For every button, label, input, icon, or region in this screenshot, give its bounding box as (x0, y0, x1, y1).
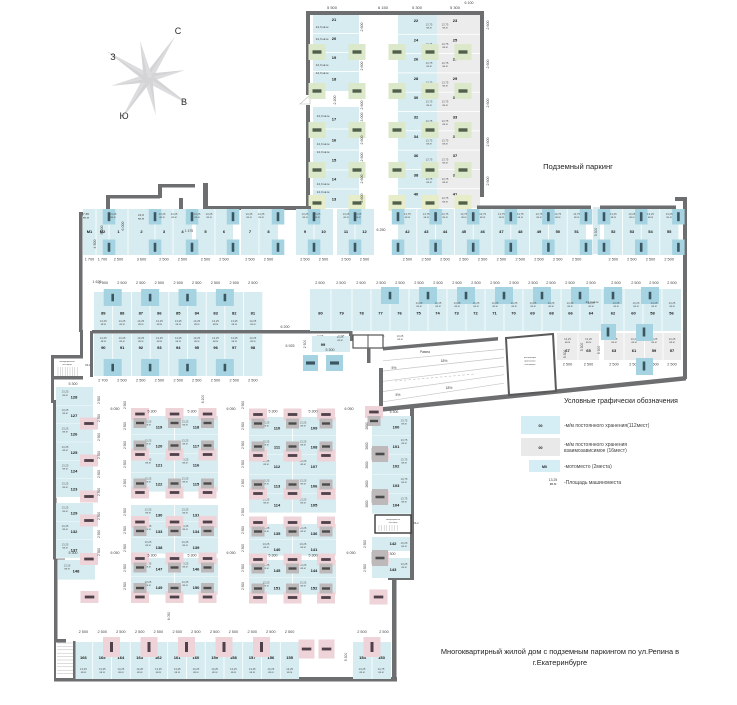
svg-text:103: 103 (393, 483, 400, 488)
svg-text:142: 142 (390, 541, 397, 546)
svg-text:кв.м: кв.м (182, 512, 187, 515)
svg-text:14,3 кв.м: 14,3 кв.м (316, 37, 329, 41)
svg-text:59: 59 (652, 348, 657, 353)
svg-text:111: 111 (274, 444, 281, 449)
svg-text:кв.м: кв.м (424, 216, 429, 219)
svg-text:2 500: 2 500 (534, 258, 544, 262)
svg-text:2 500: 2 500 (97, 414, 101, 422)
svg-text:2 500: 2 500 (154, 630, 164, 634)
svg-text:152: 152 (311, 585, 318, 590)
svg-text:151: 151 (274, 585, 281, 590)
svg-text:6 050: 6 050 (227, 407, 236, 411)
svg-text:2 500: 2 500 (609, 363, 619, 367)
svg-text:2 500: 2 500 (563, 363, 573, 367)
svg-text:2 500: 2 500 (192, 281, 202, 285)
svg-text:кв.м: кв.м (314, 216, 319, 219)
svg-text:96: 96 (213, 345, 218, 350)
svg-text:107: 107 (311, 464, 318, 469)
svg-text:кв.м: кв.м (62, 547, 67, 550)
svg-text:эвакуационная: эвакуационная (59, 361, 75, 363)
svg-text:кв.м: кв.м (536, 216, 541, 219)
svg-text:2 500: 2 500 (646, 258, 656, 262)
svg-text:14,3 кв.м: 14,3 кв.м (316, 25, 329, 29)
svg-text:кв.м: кв.м (426, 65, 431, 68)
svg-text:21: 21 (332, 17, 337, 22)
svg-text:кв.м: кв.м (213, 323, 218, 326)
svg-text:135: 135 (274, 531, 281, 536)
svg-text:2 500: 2 500 (471, 281, 481, 285)
svg-text:3 600: 3 600 (137, 258, 147, 262)
svg-text:2 500: 2 500 (219, 258, 229, 262)
svg-text:2 500: 2 500 (241, 582, 245, 590)
svg-text:166: 166 (80, 655, 87, 660)
svg-text:кв.м: кв.м (401, 442, 406, 445)
svg-text:14,3 кв.м: 14,3 кв.м (316, 71, 329, 75)
svg-text:кв.м: кв.м (633, 305, 638, 308)
svg-text:кв.м: кв.м (100, 671, 105, 674)
svg-text:2 500: 2 500 (452, 281, 462, 285)
svg-text:126: 126 (71, 432, 78, 437)
svg-text:2 500: 2 500 (155, 281, 165, 285)
svg-text:6 050: 6 050 (167, 612, 171, 621)
svg-text:2 500: 2 500 (266, 630, 276, 634)
svg-text:кв.м: кв.м (83, 215, 89, 219)
svg-text:2 500: 2 500 (97, 396, 101, 404)
svg-text:00: 00 (539, 424, 543, 428)
svg-text:00: 00 (539, 446, 543, 450)
svg-text:88: 88 (120, 311, 125, 316)
svg-text:5 300: 5 300 (344, 653, 348, 662)
svg-text:2 600: 2 600 (486, 60, 490, 69)
svg-text:2 500: 2 500 (135, 630, 145, 634)
svg-text:32: 32 (414, 115, 419, 120)
svg-text:77: 77 (378, 311, 383, 316)
svg-text:109: 109 (311, 425, 318, 430)
svg-text:кв.м: кв.м (669, 305, 674, 308)
svg-text:кв.м: кв.м (213, 340, 218, 343)
svg-text:2 500: 2 500 (247, 630, 257, 634)
svg-text:121: 121 (156, 462, 163, 467)
svg-text:2 500: 2 500 (303, 340, 307, 349)
svg-text:2 500: 2 500 (433, 281, 443, 285)
svg-text:2 500: 2 500 (123, 544, 127, 552)
svg-text:кв.м: кв.м (258, 216, 263, 219)
svg-text:лестница: лестница (389, 522, 399, 524)
svg-text:взаимозависимое (16мест): взаимозависимое (16мест) (564, 448, 627, 454)
svg-text:61: 61 (632, 348, 637, 353)
svg-text:2 500: 2 500 (211, 379, 221, 383)
svg-text:2 500: 2 500 (627, 258, 637, 262)
svg-text:2 500: 2 500 (572, 258, 582, 262)
svg-text:2600: 2600 (365, 480, 369, 487)
svg-text:2 500: 2 500 (395, 281, 405, 285)
svg-text:кв.м: кв.м (62, 449, 67, 452)
svg-text:2 500: 2 500 (667, 363, 677, 367)
svg-text:2 500: 2 500 (357, 630, 367, 634)
svg-text:148: 148 (73, 569, 80, 574)
svg-text:кв.м: кв.м (401, 566, 406, 569)
svg-text:2 500: 2 500 (379, 630, 389, 634)
svg-text:146: 146 (193, 566, 200, 571)
svg-text:кв.м: кв.м (378, 671, 383, 674)
svg-text:6 200: 6 200 (281, 325, 290, 329)
svg-text:2 500: 2 500 (241, 401, 245, 409)
svg-text:2600: 2600 (365, 442, 369, 449)
svg-text:кв.м: кв.м (62, 467, 67, 470)
svg-text:5 300: 5 300 (309, 410, 318, 414)
svg-text:5 300: 5 300 (188, 410, 197, 414)
svg-text:-м/м постоянного хранения(112м: -м/м постоянного хранения(112мест) (564, 423, 650, 429)
svg-text:кв.м: кв.м (442, 216, 447, 219)
svg-text:кв.м: кв.м (300, 585, 305, 588)
svg-text:5 300: 5 300 (269, 554, 278, 558)
svg-text:2 500: 2 500 (319, 258, 329, 262)
svg-text:кв.м: кв.м (62, 528, 67, 531)
svg-text:кв.м: кв.м (442, 27, 447, 30)
svg-text:кв.м: кв.м (145, 512, 150, 515)
svg-text:6 000: 6 000 (121, 222, 125, 231)
svg-text:кв.м: кв.м (62, 510, 67, 513)
svg-text:2600: 2600 (365, 422, 369, 429)
svg-text:2 700: 2 700 (98, 379, 108, 383)
svg-text:33: 33 (453, 115, 458, 120)
svg-text:ЛК-2: ЛК-2 (413, 521, 419, 525)
svg-text:110: 110 (274, 425, 281, 430)
svg-text:123: 123 (71, 487, 78, 492)
svg-text:5 300: 5 300 (100, 226, 104, 235)
svg-text:145: 145 (274, 568, 281, 573)
svg-text:143: 143 (390, 567, 397, 572)
svg-text:кв.м: кв.м (300, 567, 305, 570)
svg-text:кв.м: кв.м (159, 216, 164, 219)
svg-text:М0: М0 (542, 465, 547, 469)
svg-text:г.Екатеринбурге: г.Екатеринбурге (533, 658, 587, 667)
svg-text:кв.м: кв.м (442, 104, 447, 107)
svg-text:кв.м: кв.м (206, 216, 211, 219)
svg-text:кв.м: кв.м (648, 216, 653, 219)
svg-text:кв.м: кв.м (611, 216, 616, 219)
svg-text:кв.м: кв.м (511, 305, 516, 308)
svg-text:2 500: 2 500 (229, 281, 239, 285)
svg-text:кв.м: кв.м (157, 340, 162, 343)
svg-text:6 200: 6 200 (201, 395, 205, 404)
svg-text:17: 17 (332, 117, 337, 122)
svg-text:5 300: 5 300 (188, 554, 197, 558)
svg-text:кв.м: кв.м (171, 216, 176, 219)
svg-text:кв.м: кв.м (62, 394, 67, 397)
svg-text:2 500: 2 500 (97, 451, 101, 459)
svg-text:114: 114 (274, 502, 281, 507)
svg-text:2 500: 2 500 (191, 630, 201, 634)
svg-text:кв.м: кв.м (631, 341, 636, 344)
svg-text:5 300: 5 300 (148, 554, 157, 558)
svg-text:2 500: 2 500 (363, 540, 367, 548)
svg-text:приточного: приточного (524, 361, 536, 363)
svg-text:2 500: 2 500 (116, 630, 126, 634)
svg-text:15: 15 (332, 158, 337, 163)
svg-text:104: 104 (393, 503, 400, 508)
svg-text:155: 155 (286, 655, 293, 660)
svg-text:92: 92 (139, 345, 144, 350)
svg-text:2 500: 2 500 (611, 281, 621, 285)
svg-text:68: 68 (549, 311, 554, 316)
svg-text:2 500: 2 500 (515, 258, 525, 262)
svg-text:55: 55 (667, 229, 672, 234)
svg-text:139: 139 (193, 545, 200, 550)
svg-text:2 600: 2 600 (360, 153, 364, 162)
svg-text:85: 85 (176, 311, 181, 316)
svg-text:2 500: 2 500 (241, 441, 245, 449)
svg-text:2 500: 2 500 (376, 281, 386, 285)
svg-text:кв.м: кв.м (64, 568, 69, 571)
svg-text:28: 28 (414, 76, 419, 81)
svg-text:2 500: 2 500 (123, 422, 127, 430)
svg-text:95: 95 (195, 345, 200, 350)
svg-text:2 500: 2 500 (241, 564, 245, 572)
svg-text:2 500: 2 500 (459, 258, 469, 262)
svg-text:2 500: 2 500 (159, 258, 169, 262)
svg-text:6 925: 6 925 (286, 344, 295, 348)
svg-text:кв.м: кв.м (62, 431, 67, 434)
svg-text:5 500: 5 500 (327, 5, 338, 10)
svg-text:2 500: 2 500 (173, 281, 183, 285)
svg-text:6 050: 6 050 (111, 407, 120, 411)
svg-text:82: 82 (232, 311, 237, 316)
svg-text:2 500: 2 500 (553, 258, 563, 262)
svg-text:кв.м: кв.м (442, 181, 447, 184)
svg-text:2 500: 2 500 (565, 281, 575, 285)
svg-text:83: 83 (213, 311, 218, 316)
svg-text:2 600: 2 600 (486, 138, 490, 147)
svg-text:136: 136 (311, 531, 318, 536)
svg-text:2 500: 2 500 (241, 422, 245, 430)
svg-text:70: 70 (511, 311, 516, 316)
svg-text:кв.м: кв.м (156, 671, 161, 674)
svg-text:кв.м: кв.м (101, 323, 106, 326)
svg-text:63: 63 (612, 348, 617, 353)
svg-text:кв.м: кв.м (300, 502, 305, 505)
svg-text:25: 25 (453, 37, 458, 42)
svg-text:кв.м: кв.м (492, 305, 497, 308)
svg-text:1 700: 1 700 (98, 258, 108, 262)
svg-text:86: 86 (157, 311, 162, 316)
svg-text:2 500: 2 500 (97, 512, 101, 520)
svg-text:2 500: 2 500 (248, 379, 258, 383)
svg-text:2 500: 2 500 (123, 526, 127, 534)
svg-text:кв.м: кв.м (426, 104, 431, 107)
svg-text:43: 43 (424, 229, 429, 234)
svg-text:2 500: 2 500 (123, 508, 127, 516)
svg-text:2 500: 2 500 (241, 544, 245, 552)
svg-text:2 500: 2 500 (201, 258, 211, 262)
svg-text:кв.м: кв.м (651, 341, 656, 344)
svg-text:141: 141 (311, 547, 318, 552)
svg-text:2 500: 2 500 (360, 258, 370, 262)
svg-text:127: 127 (71, 413, 78, 418)
svg-text:кв.м: кв.м (232, 340, 237, 343)
svg-text:2 500: 2 500 (79, 630, 89, 634)
svg-text:лестница: лестница (62, 364, 72, 366)
svg-text:147: 147 (156, 566, 163, 571)
svg-text:кв.м: кв.м (246, 216, 251, 219)
svg-text:кв.м: кв.м (119, 340, 124, 343)
svg-text:кв.м: кв.м (555, 216, 560, 219)
svg-text:2 500: 2 500 (245, 258, 255, 262)
svg-text:65: 65 (586, 348, 591, 353)
svg-text:75: 75 (416, 311, 421, 316)
svg-text:81: 81 (251, 311, 256, 316)
svg-text:2 500: 2 500 (229, 379, 239, 383)
svg-text:кв.м: кв.м (263, 463, 268, 466)
svg-text:кв.м: кв.м (231, 671, 236, 674)
svg-text:51: 51 (574, 229, 579, 234)
svg-text:2 500: 2 500 (300, 258, 310, 262)
svg-text:138: 138 (156, 545, 163, 550)
svg-text:2 500: 2 500 (123, 564, 127, 572)
svg-text:44: 44 (443, 229, 448, 234)
svg-text:18: 18 (332, 77, 337, 82)
svg-text:кв.м: кв.м (454, 305, 459, 308)
svg-text:2 500: 2 500 (97, 488, 101, 496)
svg-text:18%: 18% (441, 359, 448, 363)
svg-text:5 300: 5 300 (390, 410, 399, 414)
svg-text:5 300: 5 300 (597, 346, 601, 355)
svg-text:кв.м: кв.м (194, 323, 199, 326)
svg-text:69: 69 (530, 311, 535, 316)
svg-text:2 500: 2 500 (414, 281, 424, 285)
svg-text:140: 140 (274, 547, 281, 552)
svg-text:6 050: 6 050 (111, 551, 120, 555)
svg-text:2 500: 2 500 (229, 630, 239, 634)
svg-text:14: 14 (332, 177, 337, 182)
svg-text:кв.м: кв.м (175, 671, 180, 674)
svg-text:132: 132 (71, 529, 78, 534)
svg-text:2 500: 2 500 (336, 281, 346, 285)
svg-text:З: З (110, 52, 115, 62)
svg-text:кв.м: кв.м (442, 142, 447, 145)
svg-text:125: 125 (71, 450, 78, 455)
svg-text:134: 134 (193, 529, 200, 534)
svg-text:кв.м: кв.м (337, 339, 342, 342)
svg-text:64: 64 (589, 311, 594, 316)
svg-text:10: 10 (321, 229, 326, 234)
svg-text:кв.м: кв.м (268, 671, 273, 674)
svg-text:133: 133 (156, 529, 163, 534)
svg-text:2 500: 2 500 (155, 379, 165, 383)
svg-text:93: 93 (157, 345, 162, 350)
svg-text:кв.м: кв.м (138, 323, 143, 326)
svg-text:5%: 5% (396, 393, 401, 397)
svg-text:2 500: 2 500 (341, 258, 351, 262)
svg-text:кв.м: кв.м (300, 483, 305, 486)
svg-text:6 050: 6 050 (227, 551, 236, 555)
svg-text:12: 12 (362, 229, 367, 234)
svg-text:кв.м: кв.м (499, 216, 504, 219)
svg-text:С: С (175, 26, 182, 36)
svg-text:кв.м: кв.м (548, 305, 553, 308)
svg-text:150: 150 (193, 585, 200, 590)
svg-text:М1: М1 (87, 229, 93, 234)
svg-text:кв.м: кв.м (359, 671, 364, 674)
svg-text:кв.м: кв.м (669, 341, 674, 344)
svg-text:6 050: 6 050 (345, 407, 354, 411)
svg-text:5 300: 5 300 (69, 551, 78, 555)
svg-text:кв.м: кв.м (442, 162, 447, 165)
svg-text:130: 130 (156, 512, 163, 517)
svg-text:26: 26 (414, 57, 419, 62)
svg-text:кв.м: кв.м (651, 305, 656, 308)
svg-text:16: 16 (332, 138, 337, 143)
svg-text:2 500: 2 500 (123, 460, 127, 468)
svg-text:2 500: 2 500 (178, 258, 188, 262)
svg-text:Многоквартирный жилой дом с по: Многоквартирный жилой дом с подземным па… (441, 647, 679, 656)
svg-text:кв.м: кв.м (300, 425, 305, 428)
svg-text:кв.м: кв.м (401, 545, 406, 548)
svg-text:14,3 кв.м: 14,3 кв.м (316, 63, 329, 67)
svg-text:2 500: 2 500 (123, 401, 127, 409)
svg-text:144: 144 (311, 568, 318, 573)
svg-text:2 600: 2 600 (360, 62, 364, 71)
svg-text:кв.м: кв.м (666, 216, 671, 219)
svg-text:2 500: 2 500 (363, 564, 367, 572)
svg-text:-Площадь машиноместа: -Площадь машиноместа (564, 480, 621, 486)
svg-text:кв.м: кв.м (62, 486, 67, 489)
svg-text:-мотоместо (2места): -мотоместо (2места) (564, 464, 612, 470)
svg-text:115: 115 (193, 481, 200, 486)
svg-text:38: 38 (414, 172, 419, 177)
svg-text:2 500: 2 500 (497, 258, 507, 262)
svg-text:2 500: 2 500 (248, 281, 258, 285)
svg-text:80: 80 (318, 311, 323, 316)
svg-text:2 500: 2 500 (241, 479, 245, 487)
svg-text:2 500: 2 500 (546, 281, 556, 285)
svg-text:100: 100 (393, 425, 400, 430)
svg-text:14,3 кв.м: 14,3 кв.м (317, 150, 330, 154)
svg-text:113: 113 (274, 483, 281, 488)
svg-text:кв.м: кв.м (611, 341, 616, 344)
svg-text:108: 108 (311, 444, 318, 449)
svg-text:кв.м: кв.м (287, 671, 292, 674)
svg-text:2 600: 2 600 (486, 177, 490, 186)
svg-text:кв.м: кв.м (550, 482, 557, 486)
svg-text:кв.м: кв.м (137, 671, 142, 674)
svg-text:кв.м: кв.м (263, 502, 268, 505)
svg-text:кв.м: кв.м (442, 200, 447, 203)
svg-text:2 500: 2 500 (609, 258, 619, 262)
svg-text:2 500: 2 500 (136, 379, 146, 383)
svg-text:кв.м: кв.м (194, 340, 199, 343)
svg-text:5 300: 5 300 (309, 554, 318, 558)
svg-text:71: 71 (492, 311, 497, 316)
svg-text:30: 30 (414, 95, 419, 100)
svg-text:87: 87 (139, 311, 144, 316)
svg-text:2 500: 2 500 (117, 281, 127, 285)
svg-text:2 500: 2 500 (264, 258, 274, 262)
svg-text:кв.м: кв.м (426, 27, 431, 30)
svg-text:кв.м: кв.м (62, 412, 67, 415)
svg-text:кв.м: кв.м (182, 424, 187, 427)
svg-text:122: 122 (156, 481, 163, 486)
svg-text:62: 62 (611, 311, 616, 316)
svg-text:37: 37 (453, 153, 458, 158)
svg-text:5 300: 5 300 (326, 348, 335, 352)
svg-text:124: 124 (71, 468, 78, 473)
svg-text:кв.м: кв.м (401, 423, 406, 426)
svg-text:66: 66 (568, 311, 573, 316)
svg-text:45: 45 (462, 229, 467, 234)
svg-text:99: 99 (321, 342, 326, 347)
svg-text:2 500: 2 500 (114, 258, 124, 262)
